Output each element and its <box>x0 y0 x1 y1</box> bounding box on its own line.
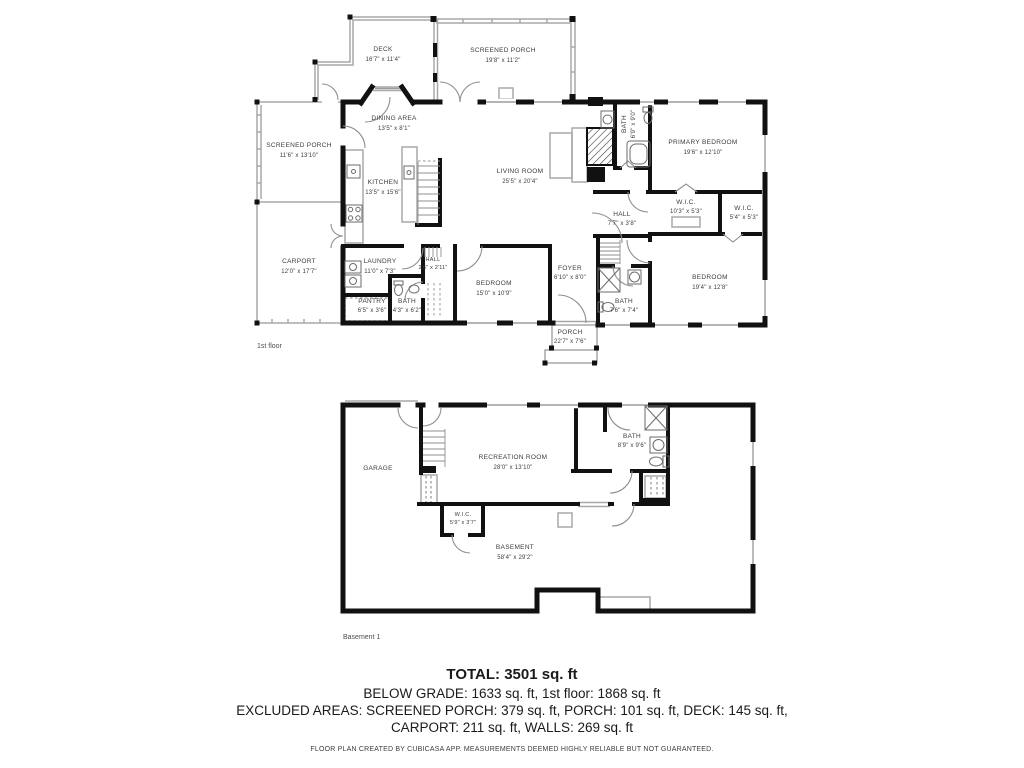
room-label-wic2-dims: 5'4" x 5'3" <box>730 215 758 221</box>
room-label-screened-porch-top-name: SCREENED PORCH <box>470 47 536 54</box>
room-label-living-dims: 25'5" x 20'4" <box>502 179 538 185</box>
room-label-dining-dims: 13'5" x 8'1" <box>378 126 410 132</box>
summary-total: TOTAL: 3501 sq. ft <box>0 666 1024 683</box>
room-label-bedroom2-dims: 19'4" x 12'8" <box>692 285 728 291</box>
room-label-primary-bedroom-name: PRIMARY BEDROOM <box>668 139 737 146</box>
first-floor-plan: DECK 16'7" x 11'4" SCREENED PORCH 19'8" … <box>250 8 774 370</box>
room-label-living-name: LIVING ROOM <box>497 168 544 175</box>
room-label-pantry-dims: 6'5" x 3'6" <box>358 308 386 314</box>
room-label-hall1-name: HALL <box>613 211 631 218</box>
room-label-deck-name: DECK <box>373 46 393 53</box>
room-label-wic1-name: W.I.C. <box>676 199 696 206</box>
room-label-recreation-dims: 28'0" x 13'10" <box>493 465 532 471</box>
summary-footer: TOTAL: 3501 sq. ft BELOW GRADE: 1633 sq.… <box>0 666 1024 753</box>
room-label-primary-bedroom-dims: 19'6" x 12'10" <box>683 150 722 156</box>
room-label-primary-bath-dims: 6'9" x 9'0" <box>631 110 637 138</box>
room-label-kitchen-name: KITCHEN <box>368 179 399 186</box>
room-label-carport-dims: 12'0" x 17'7" <box>281 269 317 275</box>
room-label-foyer-dims: 6'10" x 8'0" <box>554 275 586 281</box>
room-label-basement-wic-dims: 5'9" x 3'7" <box>450 520 476 526</box>
room-label-screened-porch-left-name: SCREENED PORCH <box>266 142 332 149</box>
room-label-bedroom1-dims: 15'0" x 10'9" <box>476 291 512 297</box>
room-label-hall2-dims: 2'6" x 2'11" <box>418 265 447 271</box>
basement-stairs-layer <box>423 429 445 467</box>
floor-plan-page: DECK 16'7" x 11'4" SCREENED PORCH 19'8" … <box>0 0 1024 768</box>
room-label-bath2-dims: 4'3" x 6'2" <box>393 308 421 314</box>
room-label-basement-bath-name: BATH <box>623 433 641 440</box>
room-label-deck-dims: 16'7" x 11'4" <box>365 57 400 63</box>
summary-excluded-areas-1: EXCLUDED AREAS: SCREENED PORCH: 379 sq. … <box>0 702 1024 719</box>
room-label-wic2-name: W.I.C. <box>734 205 754 212</box>
room-label-garage-name: GARAGE <box>363 465 393 472</box>
fireplace <box>587 97 613 182</box>
basement-exterior-walls <box>343 405 753 611</box>
room-label-dining-name: DINING AREA <box>371 115 417 122</box>
room-label-porch-dims: 22'7" x 7'6" <box>554 339 586 345</box>
room-label-basement-bath-dims: 8'9" x 9'6" <box>618 443 646 449</box>
summary-excluded-areas-2: CARPORT: 211 sq. ft, WALLS: 269 sq. ft <box>0 719 1024 736</box>
room-label-basement-wic-name: W.I.C. <box>455 512 472 518</box>
room-label-bath3-dims: 7'6" x 7'4" <box>610 308 638 314</box>
room-label-carport-name: CARPORT <box>282 258 316 265</box>
room-label-pantry-name: PANTRY <box>358 298 386 305</box>
summary-below-grade: BELOW GRADE: 1633 sq. ft, 1st floor: 186… <box>0 685 1024 702</box>
room-label-basement-dims: 58'4" x 29'2" <box>497 555 533 561</box>
basement-plan: GARAGE RECREATION ROOM 28'0" x 13'10" BA… <box>338 396 766 644</box>
room-label-bedroom2-name: BEDROOM <box>692 274 728 281</box>
room-label-porch-name: PORCH <box>558 329 583 336</box>
basement-doors-layer <box>398 408 634 553</box>
basement-windows-layer <box>487 405 753 564</box>
floor-label-basement-1: Basement 1 <box>343 634 380 641</box>
room-label-primary-bath-name: BATH <box>621 115 628 133</box>
room-label-laundry-dims: 11'0" x 7'3" <box>364 269 396 275</box>
room-label-kitchen-dims: 13'5" x 15'6" <box>365 190 401 196</box>
room-label-bedroom1-name: BEDROOM <box>476 280 512 287</box>
room-label-bath3-name: BATH <box>615 298 633 305</box>
basement-fixtures-layer <box>645 406 669 467</box>
room-label-bath2-name: BATH <box>398 298 416 305</box>
posts-layer <box>255 15 600 366</box>
room-labels-layer: DECK 16'7" x 11'4" SCREENED PORCH 19'8" … <box>257 46 758 350</box>
room-label-wic1-dims: 10'3" x 5'3" <box>670 209 702 215</box>
stair-landing-wall <box>419 466 436 473</box>
room-label-screened-porch-top-dims: 19'8" x 11'2" <box>485 58 520 64</box>
room-label-basement-name: BASEMENT <box>496 544 534 551</box>
room-label-screened-porch-left-dims: 11'6" x 13'10" <box>280 153 319 159</box>
summary-disclaimer: FLOOR PLAN CREATED BY CUBICASA APP. MEAS… <box>0 746 1024 753</box>
floor-label-1st-floor: 1st floor <box>257 343 283 350</box>
room-label-hall2-name: HALL <box>426 257 441 263</box>
room-label-foyer-name: FOYER <box>558 265 582 272</box>
room-label-laundry-name: LAUNDRY <box>363 258 396 265</box>
room-label-recreation-name: RECREATION ROOM <box>479 454 548 461</box>
room-label-hall1-dims: 7'7" x 3'8" <box>608 221 636 227</box>
